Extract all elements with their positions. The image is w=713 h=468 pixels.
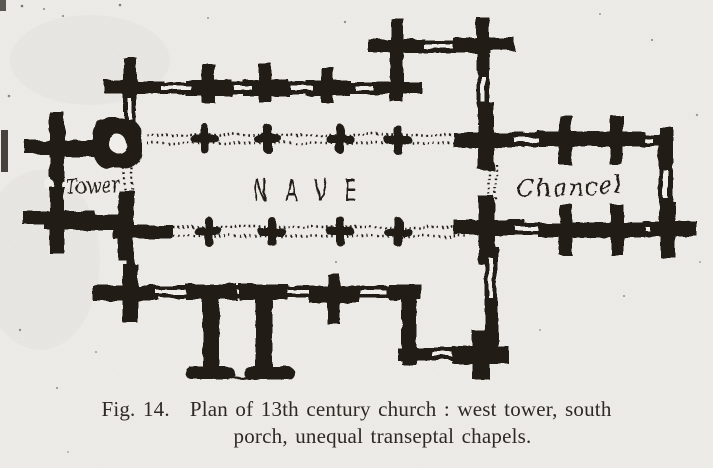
figure-number: Fig. 14.	[101, 397, 169, 421]
caption-line-2: porch, unequal transeptal chapels.	[26, 423, 713, 450]
scanned-book-page: Tower NAVE Chancel Fig. 14.Plan of 13th …	[0, 0, 713, 468]
figure-caption: Fig. 14.Plan of 13th century church : we…	[0, 396, 713, 450]
caption-line-1: Fig. 14.Plan of 13th century church : we…	[0, 396, 713, 423]
nave-label: NAVE	[254, 173, 373, 208]
tower-label: Tower	[65, 171, 122, 199]
chancel-label: Chancel	[516, 171, 623, 203]
caption-title-part-1: Plan of 13th century church : west tower…	[190, 397, 612, 421]
